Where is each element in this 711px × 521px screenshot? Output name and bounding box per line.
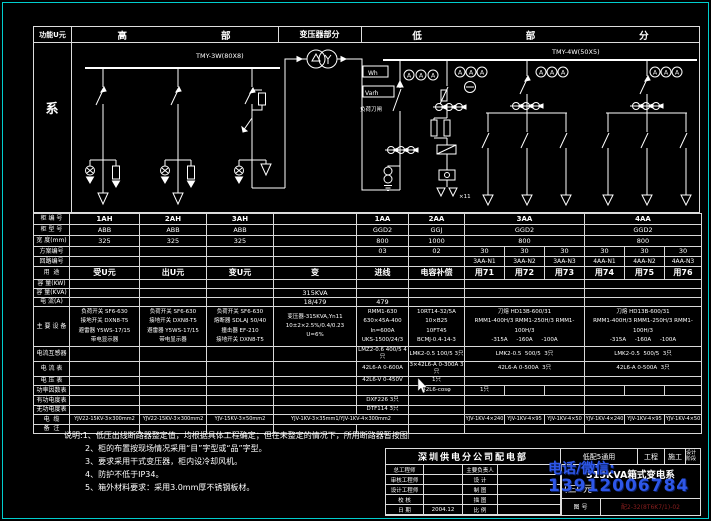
header-transformer-section: 变压器部分 xyxy=(278,27,361,42)
title-block-field-value xyxy=(424,485,463,495)
table-cell: 42L6-cosφ xyxy=(409,385,465,395)
table-cell: 用73 xyxy=(545,267,585,280)
table-cell: LMZ2-0.6 400/5 4只 xyxy=(357,347,409,362)
table-cell xyxy=(207,247,274,257)
table-cell xyxy=(585,280,702,289)
table-cell: 03 xyxy=(357,247,409,257)
table-cell: 30 xyxy=(665,247,702,257)
table-cell: 4AA xyxy=(585,214,702,225)
drawing-title-line2: (三U元 xyxy=(564,482,624,494)
table-cell xyxy=(70,385,140,395)
note-line: 2、柜的布置按现场情况采用“目”字型或“品”字型。 xyxy=(64,442,409,455)
table-cell xyxy=(409,405,465,414)
table-cell: 42L6-A 0-500A 3只 xyxy=(585,362,702,377)
doc-type: 低配5通用 xyxy=(561,449,638,465)
table-cell: 4AA-N3 xyxy=(665,257,702,267)
schematic-area: 功能U元 高部 变压器部分 低部分 系 xyxy=(33,26,700,213)
row-label: 方案编号 xyxy=(34,247,70,257)
table-cell xyxy=(70,405,140,414)
table-cell xyxy=(545,385,585,395)
table-cell xyxy=(70,376,140,385)
table-cell: 电容补偿 xyxy=(409,267,465,280)
table-cell: GGJ xyxy=(409,225,465,236)
table-cell xyxy=(274,236,357,247)
row-label: 用 途 xyxy=(34,267,70,280)
note-line: 说明:1、低压出线断路器整定值，均根据具体工程确定；但在未整定的情况下，所用断路… xyxy=(64,429,409,442)
table-cell: 2AA xyxy=(409,214,465,225)
table-cell xyxy=(70,395,140,405)
table-cell xyxy=(465,424,585,433)
header-hv-section: 高部 xyxy=(71,27,278,42)
company-name: 深圳供电分公司配电部 xyxy=(386,449,561,465)
table-cell xyxy=(357,289,409,298)
header-section-char: 高 xyxy=(117,28,128,42)
table-cell xyxy=(585,385,625,395)
table-cell xyxy=(140,298,207,307)
table-cell: 315KVA xyxy=(274,289,357,298)
table-cell: 4AA-N2 xyxy=(625,257,665,267)
row-label: 电 流(A) xyxy=(34,298,70,307)
table-cell xyxy=(585,405,702,414)
table-cell: YJV-1KV-3×35mm1/YJV-1KV-4×300mm2 xyxy=(274,414,409,424)
table-cell: YJV-1KV-4×50 xyxy=(665,414,702,424)
title-block-field-value: 2004.12 xyxy=(424,505,463,515)
project-label: 工程 xyxy=(638,449,665,465)
table-cell: YJV22-15KV-3×300mm2 xyxy=(140,414,207,424)
doc-no-label: 图 号 xyxy=(561,498,601,515)
header-section-char: 部 xyxy=(526,28,537,42)
table-cell: 变U元 xyxy=(207,267,274,280)
cad-drawing-sheet: 功能U元 高部 变压器部分 低部分 系 柜 编 号1AH2AH3AH1AA2AA… xyxy=(0,0,711,521)
table-cell xyxy=(505,385,545,395)
title-block-field-value xyxy=(424,475,463,485)
row-label: 容 量(KW) xyxy=(34,280,70,289)
table-cell xyxy=(465,395,585,405)
table-cell: 02 xyxy=(409,247,465,257)
table-cell xyxy=(70,247,140,257)
row-label: 电 缆 xyxy=(34,414,70,424)
table-cell xyxy=(585,395,702,405)
table-cell: 1AA xyxy=(357,214,409,225)
table-cell xyxy=(409,289,465,298)
table-cell xyxy=(140,376,207,385)
table-cell xyxy=(140,280,207,289)
table-cell xyxy=(357,280,409,289)
table-cell xyxy=(274,214,357,225)
table-cell xyxy=(207,257,274,267)
table-cell xyxy=(409,414,465,424)
note-line: 4、防护不低于IP34。 xyxy=(64,468,409,481)
table-cell xyxy=(70,257,140,267)
table-cell: 1只 xyxy=(465,385,505,395)
table-cell: 3AH xyxy=(207,214,274,225)
table-cell xyxy=(70,289,140,298)
title-block-field-label: 审核工程师 xyxy=(386,475,424,485)
row-label: 柜 编 号 xyxy=(34,214,70,225)
header-section-char: 分 xyxy=(639,28,650,42)
table-cell: 3AA xyxy=(465,214,585,225)
table-cell xyxy=(274,405,357,414)
header-function-unit: 功能U元 xyxy=(34,27,71,42)
title-block-field-value xyxy=(498,485,561,495)
table-cell: ABB xyxy=(70,225,140,236)
table-cell: 用75 xyxy=(625,267,665,280)
table-cell xyxy=(625,385,665,395)
table-cell xyxy=(274,347,357,362)
table-cell: YJV22-15KV-3×300mm2 xyxy=(70,414,140,424)
table-cell xyxy=(585,376,702,385)
table-cell: 2AH xyxy=(140,214,207,225)
table-cell xyxy=(274,225,357,236)
table-cell: 42L6-V 0-450V xyxy=(357,376,409,385)
table-cell xyxy=(70,347,140,362)
table-cell xyxy=(140,347,207,362)
table-cell xyxy=(409,395,465,405)
title-block: 深圳供电分公司配电部 低配5通用 工程 施工 设计阶段 总工程师主要负责人审核工… xyxy=(385,448,701,516)
table-cell xyxy=(207,376,274,385)
table-cell xyxy=(585,424,702,433)
table-cell: 30 xyxy=(625,247,665,257)
table-cell xyxy=(70,280,140,289)
row-label: 柜 型 号 xyxy=(34,225,70,236)
table-cell: 刀熔 HD13B-600/31 RMM1-400H/3 RMM1-250H/3 … xyxy=(465,307,585,347)
row-label: 主 要 设 备 xyxy=(34,307,70,347)
table-cell: 3AA-N1 xyxy=(465,257,505,267)
table-cell xyxy=(140,289,207,298)
title-block-field-value xyxy=(424,495,463,505)
row-label: 无功电度表 xyxy=(34,405,70,414)
header-divider xyxy=(34,42,699,43)
row-label: 电 流 表 xyxy=(34,362,70,377)
table-cell xyxy=(465,405,585,414)
note-line: 5、箱外材料要求：采用3.0mm厚不锈钢板材。 xyxy=(64,481,409,494)
table-cell xyxy=(465,289,585,298)
table-cell: GGD2 xyxy=(465,225,585,236)
construction-label: 施工 xyxy=(665,449,686,465)
table-cell: 30 xyxy=(505,247,545,257)
table-cell xyxy=(465,376,585,385)
title-block-field-value xyxy=(424,465,463,475)
table-cell xyxy=(140,257,207,267)
table-cell xyxy=(409,424,465,433)
table-cell: 30 xyxy=(465,247,505,257)
row-label: 容 量(KVA) xyxy=(34,289,70,298)
table-cell xyxy=(140,247,207,257)
table-cell: 1000 xyxy=(409,236,465,247)
table-cell xyxy=(409,280,465,289)
table-cell: 负荷开关 SF6-630 熔断器 SDLAJ 50/40 撞击器 EF-210 … xyxy=(207,307,274,347)
title-block-field-label: 制 图 xyxy=(463,485,498,495)
table-cell: ABB xyxy=(207,225,274,236)
table-cell xyxy=(207,395,274,405)
table-cell: 10RT14-32/5A 10×B25 10FT45 BCMJ-0.4-14-3 xyxy=(409,307,465,347)
table-cell xyxy=(274,257,357,267)
table-cell: 325 xyxy=(70,236,140,247)
row-label: 有功电度表 xyxy=(34,395,70,405)
drawing-notes: 说明:1、低压出线断路器整定值，均根据具体工程确定；但在未整定的情况下，所用断路… xyxy=(64,429,409,494)
table-cell: YJV-1KV-4×95 xyxy=(505,414,545,424)
table-cell: 3×42L6-A 0-300A 3只 xyxy=(409,362,465,377)
table-cell: 1AH xyxy=(70,214,140,225)
table-cell xyxy=(465,298,585,307)
table-cell: 3AA-N3 xyxy=(545,257,585,267)
table-cell: 30 xyxy=(585,247,625,257)
table-cell xyxy=(274,385,357,395)
table-cell: 800 xyxy=(585,236,702,247)
table-cell: 刀熔 HD13B-600/31 RMM1-400H/3 RMM1-250H/3 … xyxy=(585,307,702,347)
table-cell xyxy=(274,395,357,405)
title-block-field-value xyxy=(498,465,561,475)
table-cell: 479 xyxy=(357,298,409,307)
table-cell: LMK2-0.5 500/5 3只 xyxy=(585,347,702,362)
title-block-field-value xyxy=(498,495,561,505)
table-cell xyxy=(207,385,274,395)
table-cell: 800 xyxy=(465,236,585,247)
table-cell: 受U元 xyxy=(70,267,140,280)
title-block-field-value xyxy=(498,475,561,485)
table-cell: YJV-1KV-4×240 xyxy=(585,414,625,424)
title-block-field-label: 主要负责人 xyxy=(463,465,498,475)
title-block-field-value xyxy=(498,505,561,515)
table-cell xyxy=(207,289,274,298)
spec-table: 柜 编 号1AH2AH3AH1AA2AA3AA4AA柜 型 号ABBABBABB… xyxy=(33,213,702,434)
table-cell xyxy=(207,362,274,377)
table-cell xyxy=(207,280,274,289)
table-cell xyxy=(357,385,409,395)
table-cell xyxy=(207,347,274,362)
column-divider xyxy=(71,27,72,212)
table-cell: GGD2 xyxy=(357,225,409,236)
table-cell: 负荷开关 SF6-630 接地开关 DXN8-T5 避雷器 Y5WS-17/15… xyxy=(140,307,207,347)
table-cell xyxy=(585,298,702,307)
drawing-title-line1: 315KVA箱式变电系 xyxy=(561,467,700,481)
table-cell xyxy=(140,385,207,395)
row-label: 电 压 表 xyxy=(34,376,70,385)
table-cell: 用71 xyxy=(465,267,505,280)
table-cell xyxy=(274,247,357,257)
table-cell: 30 xyxy=(545,247,585,257)
title-block-field-label: 设 计 xyxy=(463,475,498,485)
table-cell: 325 xyxy=(140,236,207,247)
table-cell: 用74 xyxy=(585,267,625,280)
table-cell: 325 xyxy=(207,236,274,247)
table-cell: GGD2 xyxy=(585,225,702,236)
table-cell xyxy=(274,362,357,377)
table-cell xyxy=(585,289,702,298)
table-cell: ABB xyxy=(140,225,207,236)
title-block-field-label: 校 核 xyxy=(386,495,424,505)
table-cell xyxy=(409,257,465,267)
table-cell xyxy=(409,298,465,307)
doc-no-value: 配2-32(8T6K7/1)-02 xyxy=(601,498,700,515)
table-cell: RMM1-630 630×45A-400 In=600A UKS-1500/24… xyxy=(357,307,409,347)
row-label: 回路编号 xyxy=(34,257,70,267)
table-cell: DXF226 3只 xyxy=(357,395,409,405)
table-cell: LMK2-0.5 100/5 3只 xyxy=(409,347,465,362)
table-cell: 18/479 xyxy=(274,298,357,307)
table-cell xyxy=(70,298,140,307)
title-block-field-label: 描 图 xyxy=(463,495,498,505)
table-cell xyxy=(665,385,702,395)
table-cell: 进线 xyxy=(357,267,409,280)
title-block-field-label: 日 期 xyxy=(386,505,424,515)
table-cell xyxy=(140,362,207,377)
row-label: 宽 度(mm) xyxy=(34,236,70,247)
header-lv-section: 低部分 xyxy=(361,27,701,42)
title-block-field-label: 比 例 xyxy=(463,505,498,515)
table-cell: 用72 xyxy=(505,267,545,280)
table-cell xyxy=(465,280,585,289)
table-cell: 变 xyxy=(274,267,357,280)
table-cell: LMK2-0.5 500/5 3只 xyxy=(465,347,585,362)
table-cell xyxy=(140,405,207,414)
table-cell xyxy=(357,257,409,267)
title-block-field-label: 设计工程师 xyxy=(386,485,424,495)
table-cell: 用76 xyxy=(665,267,702,280)
table-cell: 变压器-315KVA,Yn11 10±2×2.5%/0.4/0.23 U=6% xyxy=(274,307,357,347)
table-cell xyxy=(274,376,357,385)
title-block-field-label: 总工程师 xyxy=(386,465,424,475)
row-label: 电流互感器 xyxy=(34,347,70,362)
table-cell xyxy=(207,298,274,307)
header-section-char: 低 xyxy=(412,28,423,42)
row-label: 功率因数表 xyxy=(34,385,70,395)
table-cell: YJV-1KV-4×50 xyxy=(545,414,585,424)
function-column-label: 系 xyxy=(34,87,71,127)
table-cell: 3AA-N2 xyxy=(505,257,545,267)
table-cell: DTF114 3只 xyxy=(357,405,409,414)
table-cell: 负荷开关 SF6-630 接地开关 DXN8-T5 避雷器 Y5WS-17/15… xyxy=(70,307,140,347)
table-cell: 42L6-A 0-500A 3只 xyxy=(465,362,585,377)
header-section-char: 部 xyxy=(221,28,232,42)
table-cell xyxy=(140,395,207,405)
table-cell: 1只 xyxy=(409,376,465,385)
table-cell xyxy=(274,280,357,289)
table-cell xyxy=(207,405,274,414)
table-cell: YJV-1KV-4×95 xyxy=(625,414,665,424)
stage-label: 设计阶段 xyxy=(686,449,700,465)
table-cell: YJV-15KV-3×50mm2 xyxy=(207,414,274,424)
table-cell: 4AA-N1 xyxy=(585,257,625,267)
table-cell: 800 xyxy=(357,236,409,247)
table-cell: YJV-1KV-4×240 xyxy=(465,414,505,424)
table-cell: 出U元 xyxy=(140,267,207,280)
table-cell: 42L6-A 0-600A xyxy=(357,362,409,377)
note-line: 3、要求采用干式变压器，柜内设冷却风机。 xyxy=(64,455,409,468)
table-cell xyxy=(70,362,140,377)
